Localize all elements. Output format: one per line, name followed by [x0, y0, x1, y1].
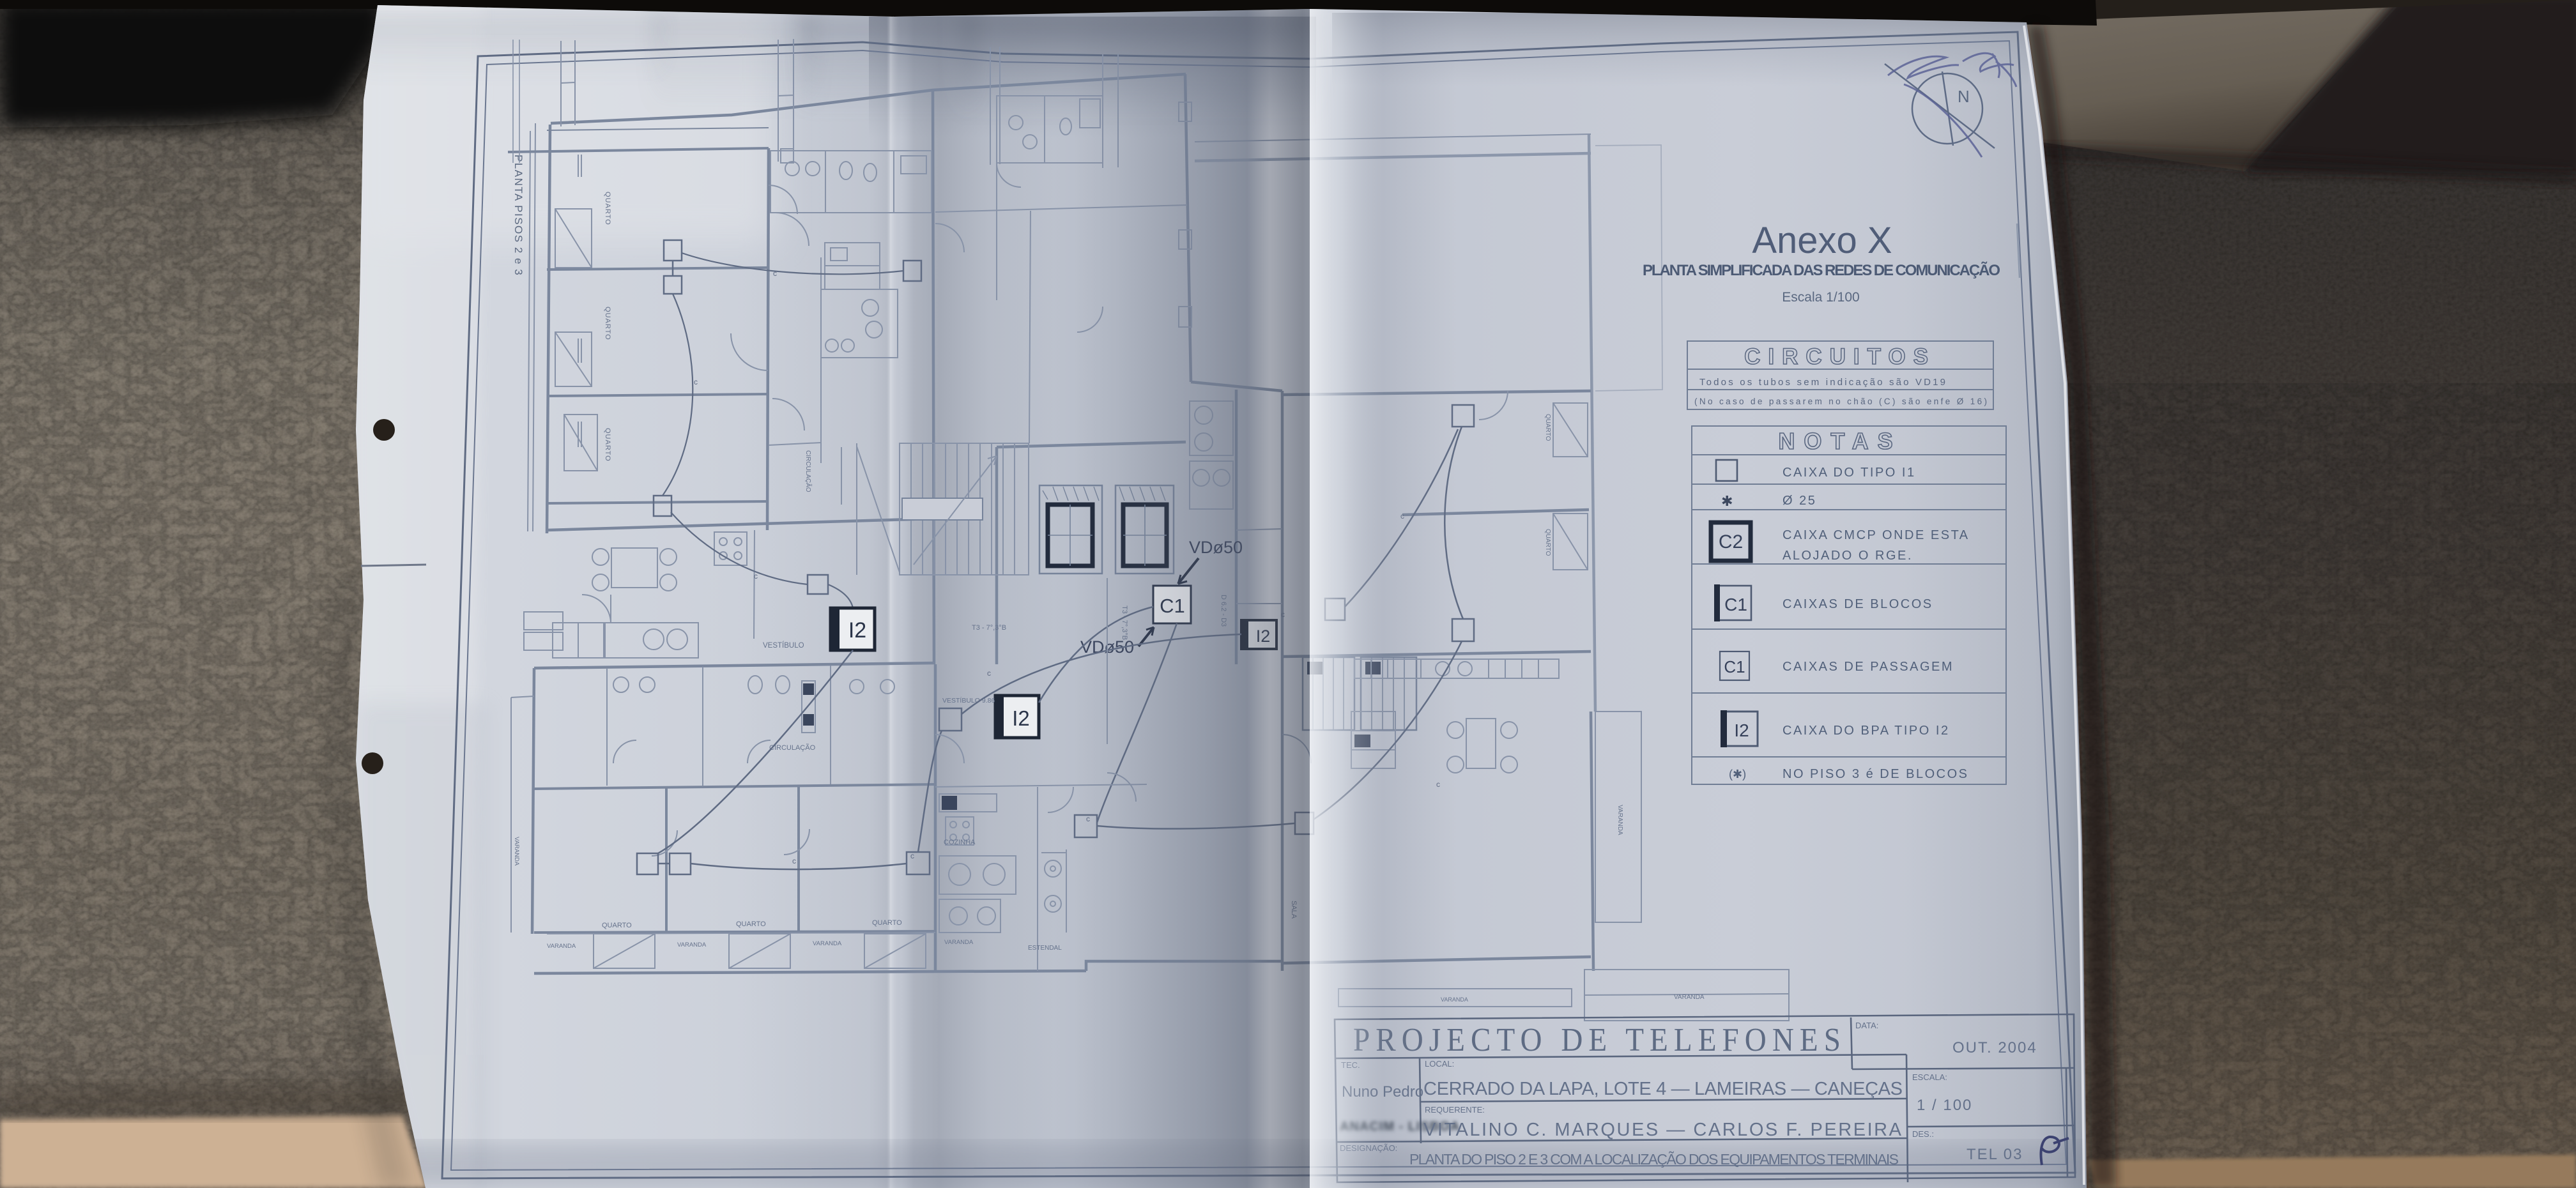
- svg-text:ALOJADO O RGE.: ALOJADO O RGE.: [1782, 549, 1913, 563]
- svg-text:N: N: [1958, 87, 1970, 106]
- svg-text:QUARTO: QUARTO: [872, 919, 902, 927]
- svg-text:(✱): (✱): [1729, 768, 1746, 781]
- svg-text:I2: I2: [848, 618, 866, 643]
- svg-text:c: c: [910, 851, 914, 860]
- svg-text:I2: I2: [1734, 720, 1749, 740]
- svg-text:VARANDA: VARANDA: [547, 943, 576, 950]
- svg-text:Escala 1/100: Escala 1/100: [1782, 290, 1859, 305]
- svg-text:VARANDA: VARANDA: [1616, 805, 1623, 835]
- svg-text:QUARTO: QUARTO: [736, 920, 766, 928]
- svg-text:PLANTA PISOS 2 e 3: PLANTA PISOS 2 e 3: [512, 155, 525, 276]
- svg-text:TEL 03: TEL 03: [1966, 1146, 2023, 1163]
- svg-text:CAIXA DO TIPO I1: CAIXA DO TIPO I1: [1782, 466, 1916, 480]
- svg-text:VITALINO C. MARQUES — CARL: VITALINO C. MARQUES — CARLOS F. PEREIRA: [1423, 1120, 1902, 1140]
- svg-text:ESCALA:: ESCALA:: [1912, 1072, 1947, 1082]
- svg-text:QUARTO: QUARTO: [604, 307, 611, 340]
- svg-text:c: c: [773, 269, 777, 278]
- svg-text:1 / 100: 1 / 100: [1917, 1097, 1972, 1114]
- svg-text:CAIXA CMCP ONDE ESTA: CAIXA CMCP ONDE ESTA: [1782, 528, 1970, 542]
- svg-text:T3 - 7°,3°B: T3 - 7°,3°B: [972, 624, 1006, 632]
- svg-text:NO PISO 3 é DE BLOCOS: NO PISO 3 é DE BLOCOS: [1782, 767, 1968, 781]
- svg-text:c: c: [792, 857, 796, 865]
- svg-text:OUT. 2004: OUT. 2004: [1952, 1039, 2037, 1056]
- svg-text:CIRCUITOS: CIRCUITOS: [1744, 344, 1936, 369]
- svg-text:QUARTO: QUARTO: [604, 192, 611, 225]
- svg-text:CAIXAS DE BLOCOS: CAIXAS DE BLOCOS: [1782, 597, 1933, 611]
- svg-text:✱: ✱: [1721, 493, 1733, 509]
- svg-text:c: c: [987, 669, 991, 678]
- svg-text:CIRCULAÇÃO: CIRCULAÇÃO: [769, 743, 816, 752]
- svg-text:VESTÍBULO: VESTÍBULO: [763, 641, 804, 650]
- svg-text:VARANDA: VARANDA: [813, 940, 842, 947]
- svg-text:Todos os tubos sem indicaç: Todos os tubos sem indicação são VD19: [1699, 377, 1945, 388]
- svg-text:QUARTO: QUARTO: [1544, 414, 1551, 441]
- svg-text:VESTÍBULO 9.86: VESTÍBULO 9.86: [942, 696, 995, 704]
- svg-text:DES.:: DES.:: [1912, 1129, 1934, 1139]
- svg-text:Ø 25: Ø 25: [1782, 494, 1816, 508]
- svg-text:VARANDA: VARANDA: [944, 939, 974, 946]
- svg-text:CAIXAS DE PASSAGEM: CAIXAS DE PASSAGEM: [1782, 660, 1954, 674]
- svg-text:NOTAS: NOTAS: [1778, 428, 1901, 454]
- svg-text:c: c: [694, 377, 698, 386]
- svg-text:c: c: [754, 572, 758, 581]
- svg-text:VARANDA: VARANDA: [677, 941, 707, 948]
- svg-text:QUARTO: QUARTO: [602, 922, 632, 929]
- svg-text:VARANDA: VARANDA: [513, 837, 520, 866]
- svg-text:C2: C2: [1719, 531, 1743, 552]
- svg-text:DATA:: DATA:: [1855, 1021, 1878, 1030]
- svg-text:PLANTA SIMPLIFICADA DAS REDES: PLANTA SIMPLIFICADA DAS REDES DE COMUNIC…: [1643, 261, 2000, 279]
- svg-text:COZINHA: COZINHA: [944, 839, 976, 846]
- svg-text:VARANDA: VARANDA: [1674, 994, 1705, 1001]
- svg-text:C1: C1: [1724, 657, 1745, 676]
- svg-text:PLANTA DO PISO 2 E 3 COM: PLANTA DO PISO 2 E 3 COM A LOCALIZAÇÃO D…: [1409, 1151, 1899, 1168]
- svg-text:ESTENDAL: ESTENDAL: [1028, 945, 1062, 952]
- svg-text:QUARTO: QUARTO: [1544, 529, 1551, 556]
- svg-text:C1: C1: [1724, 595, 1747, 614]
- svg-text:Anexo X: Anexo X: [1752, 220, 1892, 261]
- svg-text:CAIXA DO BPA TIPO I2: CAIXA DO BPA TIPO I2: [1782, 724, 1950, 738]
- svg-text:QUARTO: QUARTO: [604, 428, 611, 462]
- svg-text:I2: I2: [1012, 706, 1030, 730]
- svg-text:CIRCULAÇÃO: CIRCULAÇÃO: [804, 450, 813, 492]
- svg-text:CERRADO DA LAPA, LOTE 4 —: CERRADO DA LAPA, LOTE 4 — LAMEIRAS — CAN…: [1423, 1079, 1903, 1099]
